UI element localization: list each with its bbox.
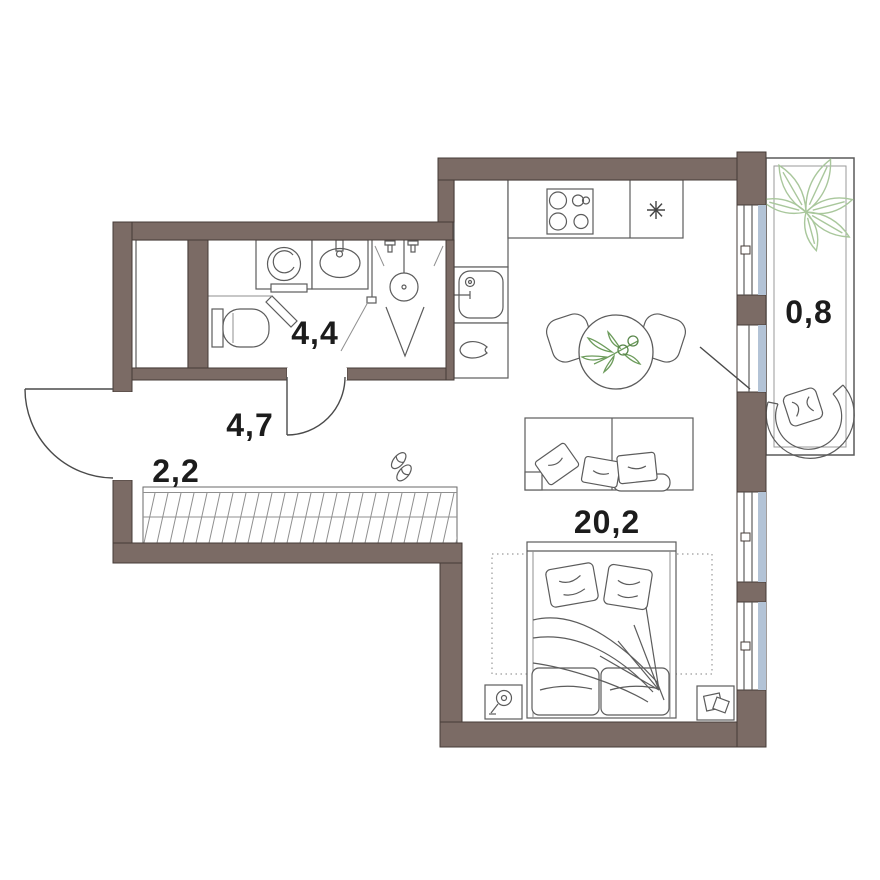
wardrobe-hatch bbox=[143, 493, 457, 543]
double-bed-icon bbox=[527, 542, 676, 718]
wall-right-bottom bbox=[737, 690, 766, 747]
wall-right-b bbox=[737, 392, 766, 492]
dining-set bbox=[543, 311, 689, 389]
kitchen-area bbox=[447, 180, 689, 389]
floor-plan: 0,8 bbox=[0, 0, 880, 880]
bathroom-door-arc bbox=[287, 377, 345, 435]
nightstand-left bbox=[485, 685, 522, 719]
wall-main-left-lower bbox=[440, 563, 462, 747]
slippers-icon bbox=[385, 450, 418, 483]
wall-kitchen-top bbox=[438, 158, 737, 180]
kitchen-sink-icon bbox=[447, 267, 508, 323]
entrance-door bbox=[25, 389, 133, 480]
sofa-icon bbox=[525, 418, 693, 491]
balcony-door bbox=[700, 325, 766, 392]
kitchen-cabinet-low bbox=[454, 323, 508, 378]
bed-pillow-right bbox=[603, 564, 653, 610]
living-area-label: 20,2 bbox=[574, 504, 640, 540]
bathroom-door-opening bbox=[287, 368, 347, 380]
balcony-area-label: 0,8 bbox=[785, 294, 832, 330]
room-balcony: 0,8 bbox=[760, 156, 854, 458]
wardrobe-unit bbox=[143, 487, 457, 543]
stove-icon bbox=[547, 189, 593, 234]
window-living-upper bbox=[737, 492, 766, 582]
wall-left-upper bbox=[113, 222, 132, 392]
bed-pillow-left bbox=[545, 562, 599, 608]
wall-closet-divider bbox=[188, 240, 208, 368]
window-kitchen bbox=[737, 205, 766, 295]
wall-shower-kitchen-partition bbox=[446, 240, 454, 380]
entrance-opening bbox=[112, 392, 133, 480]
nightstand-right bbox=[697, 686, 734, 720]
kitchen-cabinet-tall bbox=[454, 180, 508, 267]
bathroom-area-label: 4,4 bbox=[291, 315, 338, 351]
bed-cushion-left bbox=[532, 668, 599, 715]
floor-plan-drawing: 0,8 bbox=[0, 0, 880, 880]
bathroom-sink-icon bbox=[312, 240, 368, 289]
dining-table-icon bbox=[579, 315, 653, 389]
wall-bathroom-bottom-left bbox=[132, 368, 287, 380]
wall-right-a bbox=[737, 295, 766, 325]
utility-closet bbox=[136, 240, 188, 368]
bathroom-door bbox=[287, 368, 347, 435]
wall-wardrobe-bottom bbox=[113, 543, 462, 563]
wardrobe-area-label: 2,2 bbox=[152, 453, 199, 489]
window-living-lower bbox=[737, 602, 766, 690]
toilet-icon bbox=[212, 309, 269, 347]
entrance-door-arc bbox=[25, 389, 113, 478]
wall-right-pier bbox=[737, 582, 766, 602]
wall-corner-topright bbox=[737, 152, 766, 205]
wall-bottom bbox=[440, 722, 766, 747]
shower-door-swing-line bbox=[341, 302, 368, 351]
washing-machine-icon bbox=[256, 240, 312, 289]
wall-bathroom-top bbox=[113, 222, 453, 240]
wall-bathroom-bottom-right bbox=[347, 368, 454, 380]
hallway-area-label: 4,7 bbox=[226, 407, 273, 443]
